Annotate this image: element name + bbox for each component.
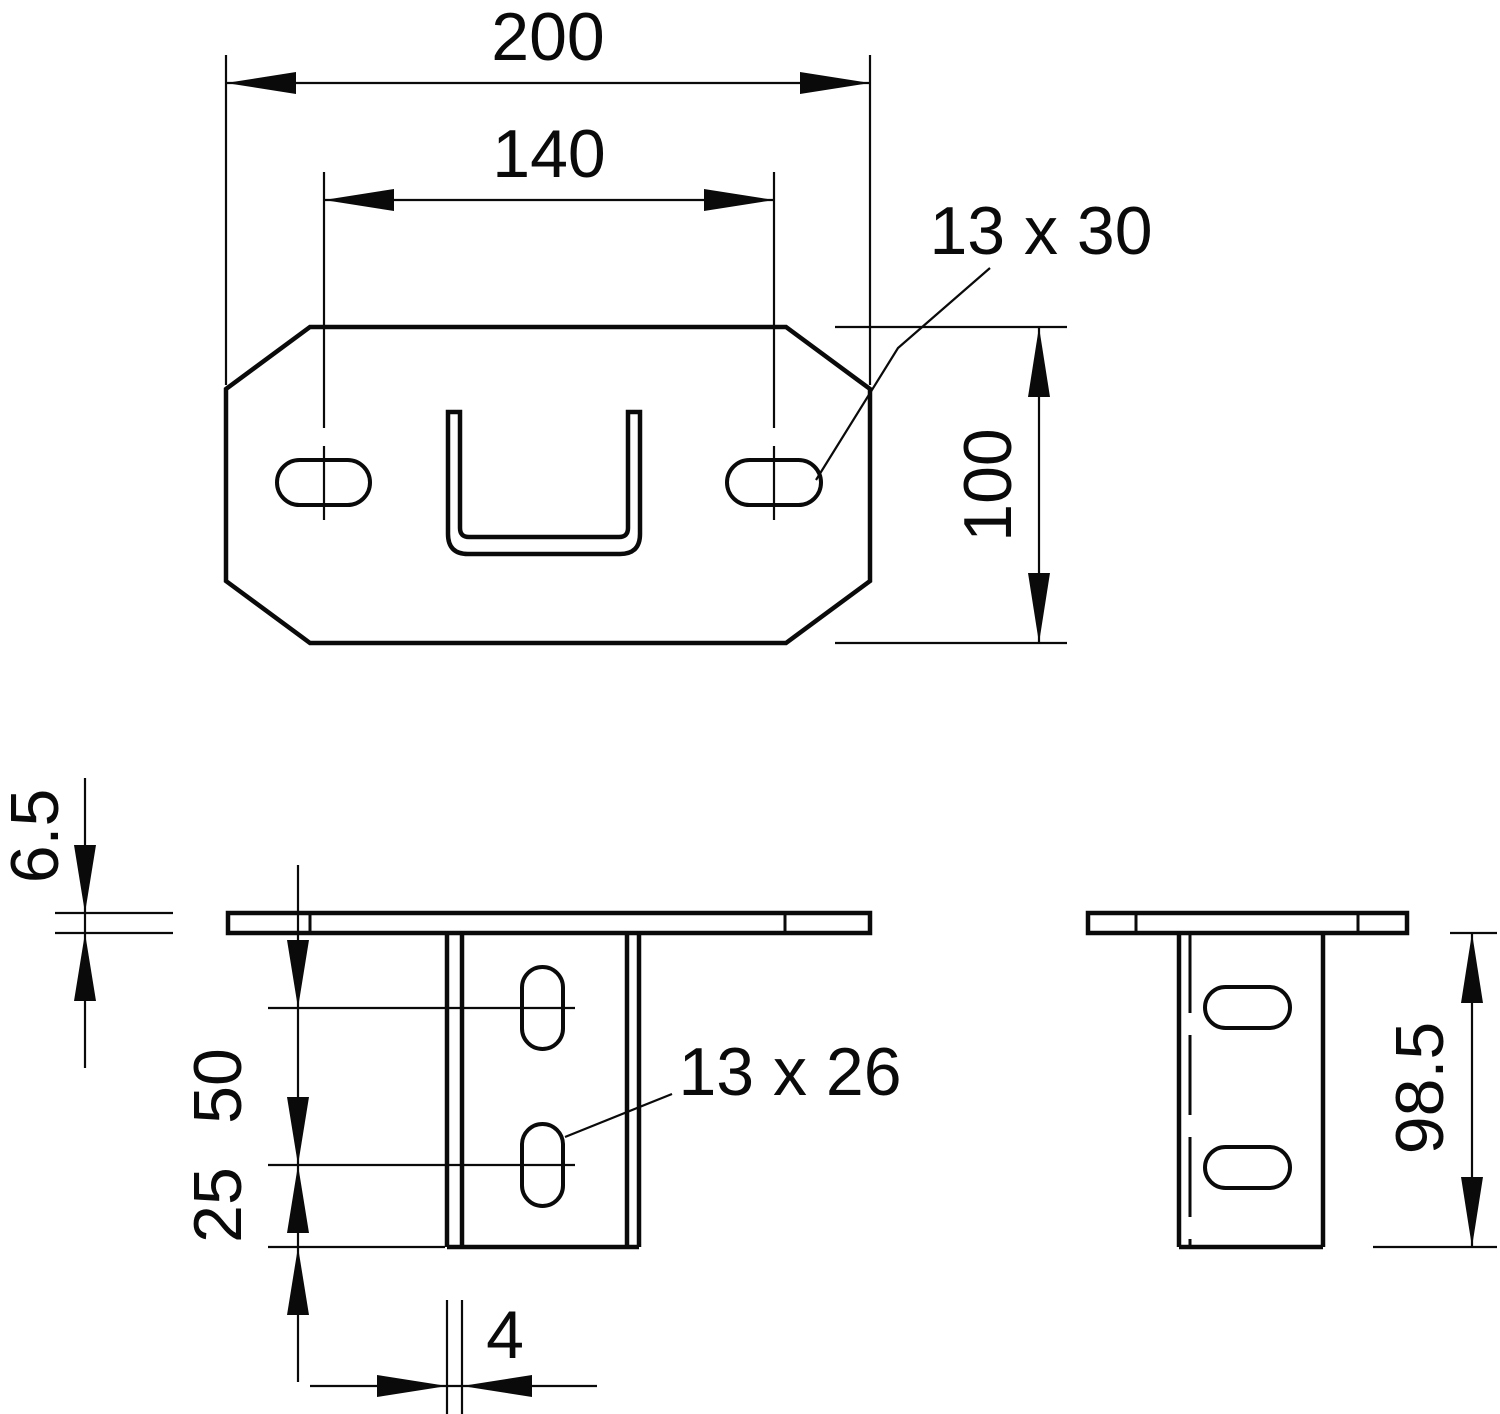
dimension-plate-thickness: 6.5 (0, 778, 173, 1068)
dim-label-slot-pitch: 50 (180, 1048, 256, 1124)
dim-label-web-slot: 13 x 26 (678, 1034, 901, 1110)
dimension-bracket-height: 98.5 (1373, 933, 1497, 1247)
dimension-web-thickness: 4 (310, 1297, 597, 1414)
leader-line (565, 1094, 672, 1137)
arrowhead-left (462, 1375, 532, 1397)
arrowhead-top (1028, 327, 1050, 397)
arrowhead-up (287, 1247, 309, 1315)
dim-label-web-thickness: 4 (486, 1297, 524, 1373)
arrowhead-up (287, 1165, 309, 1233)
arrowhead-right (800, 72, 870, 94)
arrowhead-right (377, 1375, 447, 1397)
dim-label-plate-depth: 100 (950, 428, 1026, 541)
dim-label-plate-thickness: 6.5 (0, 789, 73, 884)
side-slot-lower (1205, 1147, 1290, 1188)
dim-label-hole-spacing: 140 (492, 116, 605, 192)
arrowhead-down (287, 1097, 309, 1165)
arrowhead-right (704, 189, 774, 211)
dim-label-slot-edge-offset: 25 (180, 1167, 256, 1243)
technical-drawing: 200 140 13 x 30 100 (0, 0, 1500, 1414)
side-view (1088, 913, 1407, 1247)
arrowhead-left (324, 189, 394, 211)
arrowhead-down (287, 940, 309, 1008)
dim-label-plate-width: 200 (491, 0, 604, 75)
arrowhead-bottom (1461, 1177, 1483, 1247)
callout-web-slot: 13 x 26 (565, 1034, 902, 1137)
arrowhead-bottom (1028, 573, 1050, 643)
flange-section (228, 913, 870, 933)
side-slot-upper (1205, 987, 1290, 1028)
drawing-canvas: 200 140 13 x 30 100 (0, 0, 1500, 1414)
dim-label-bracket-height: 98.5 (1382, 1022, 1458, 1154)
arrowhead-top (1461, 933, 1483, 1003)
arrowhead-up (74, 933, 96, 1001)
arrowhead-left (226, 72, 296, 94)
arrowhead-down (74, 845, 96, 913)
dim-label-plate-slot: 13 x 30 (929, 193, 1152, 269)
